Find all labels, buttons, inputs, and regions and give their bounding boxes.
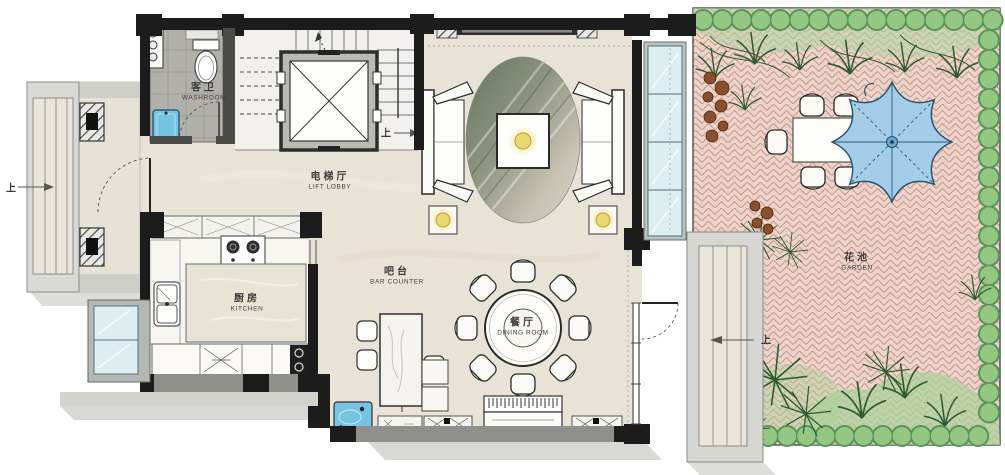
window-dining-east (633, 303, 639, 424)
stove (221, 236, 265, 266)
side-cabinet (422, 387, 448, 411)
bar-stool (357, 350, 377, 370)
floor-plan-drawing (0, 0, 1005, 475)
garden-steps (687, 232, 763, 462)
bar-stool (357, 321, 377, 341)
toilet (193, 40, 219, 50)
bar-counter-table (380, 314, 422, 406)
ceiling-lamp (515, 133, 531, 149)
side-cabinet (422, 360, 448, 384)
sideboard (484, 396, 562, 430)
elevator (277, 50, 381, 151)
garden-door-swing (642, 303, 678, 339)
entry-porch (18, 82, 140, 292)
parasol-umbrella (832, 82, 952, 202)
floor-plan: 客卫 WASHROOM 电梯厅 LIFT LOBBY 厨房 KITCHEN 吧台… (0, 0, 1005, 475)
kitchen-island (186, 264, 306, 342)
upper-cabinets (152, 216, 308, 238)
